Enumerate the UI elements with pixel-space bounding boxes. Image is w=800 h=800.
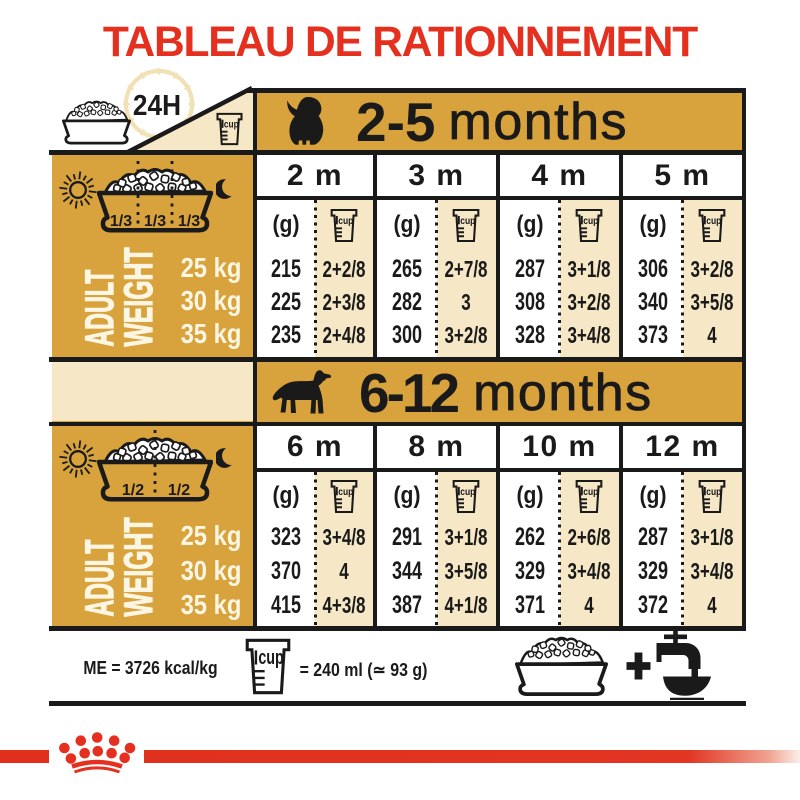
svg-text:cup: cup: [584, 215, 599, 226]
svg-text:1/3: 1/3: [144, 213, 166, 230]
svg-text:1/2: 1/2: [168, 482, 190, 499]
svg-text:1/3: 1/3: [178, 213, 200, 230]
svg-text:cup: cup: [707, 215, 722, 226]
svg-text:cup: cup: [338, 215, 353, 226]
svg-text:cup: cup: [461, 486, 476, 497]
svg-text:cup: cup: [584, 486, 599, 497]
svg-text:cup: cup: [707, 486, 722, 497]
svg-text:cup: cup: [224, 119, 239, 130]
svg-text:cup: cup: [338, 486, 353, 497]
svg-text:cup: cup: [258, 647, 283, 669]
svg-text:cup: cup: [461, 215, 476, 226]
svg-text:1/2: 1/2: [122, 482, 144, 499]
svg-text:1/3: 1/3: [110, 213, 132, 230]
